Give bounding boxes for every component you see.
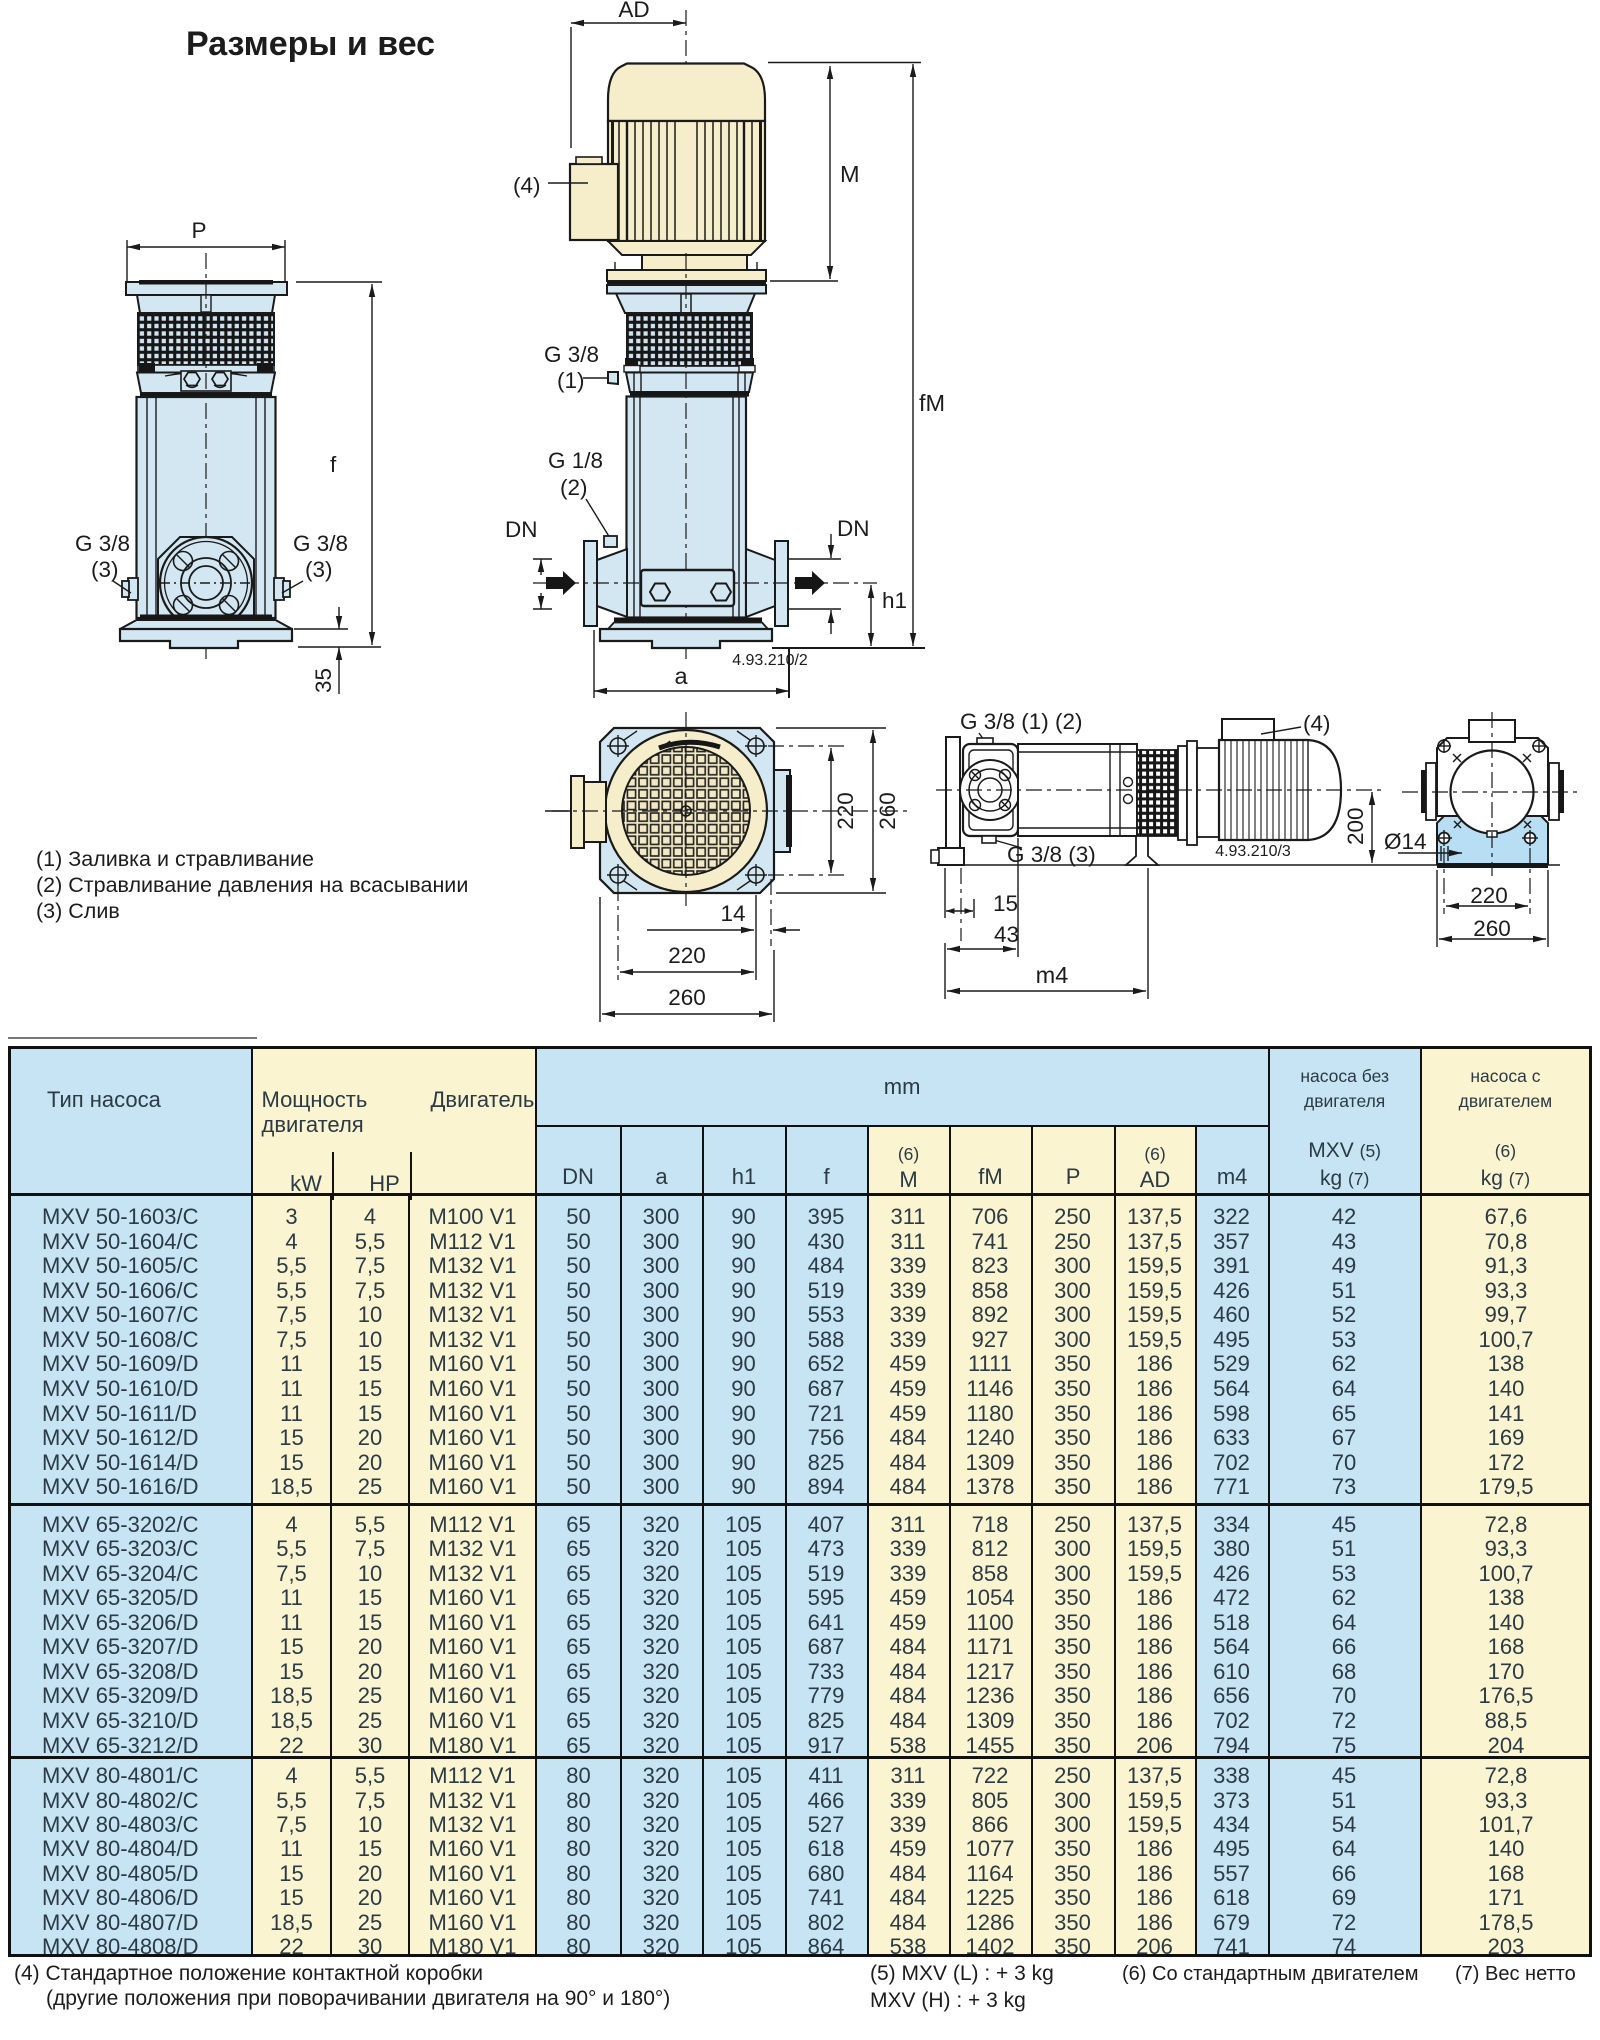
svg-text:(3): (3) bbox=[305, 557, 333, 582]
svg-text:G 3/8: G 3/8 bbox=[75, 531, 130, 556]
svg-text:220: 220 bbox=[833, 792, 858, 830]
svg-text:AD: AD bbox=[618, 0, 649, 22]
svg-text:G 3/8: G 3/8 bbox=[293, 531, 348, 556]
svg-text:15: 15 bbox=[993, 891, 1018, 916]
svg-text:Размеры и вес: Размеры и вес bbox=[186, 25, 435, 63]
svg-text:14: 14 bbox=[720, 901, 745, 926]
svg-text:220: 220 bbox=[1470, 883, 1508, 908]
svg-text:43: 43 bbox=[994, 922, 1019, 947]
svg-text:(3): (3) bbox=[91, 557, 119, 582]
svg-text:260: 260 bbox=[875, 792, 900, 830]
svg-text:260: 260 bbox=[1473, 916, 1511, 941]
svg-text:G 3/8 (3): G 3/8 (3) bbox=[1007, 842, 1096, 867]
svg-text:G 3/8 (1) (2): G 3/8 (1) (2) bbox=[960, 709, 1083, 734]
svg-text:35: 35 bbox=[311, 668, 336, 693]
svg-text:220: 220 bbox=[668, 943, 706, 968]
svg-text:(3) Слив: (3) Слив bbox=[36, 899, 120, 923]
svg-text:f: f bbox=[330, 452, 337, 477]
svg-text:4.93.210/3: 4.93.210/3 bbox=[1215, 843, 1291, 860]
svg-text:a: a bbox=[674, 663, 688, 689]
svg-text:200: 200 bbox=[1343, 807, 1368, 845]
svg-text:(2) Стравливание давления на в: (2) Стравливание давления на всасывании bbox=[36, 873, 468, 897]
svg-text:DN: DN bbox=[505, 517, 538, 542]
svg-text:DN: DN bbox=[837, 516, 870, 541]
svg-text:(4): (4) bbox=[513, 173, 541, 198]
svg-text:4.93.210/2: 4.93.210/2 bbox=[732, 652, 808, 669]
svg-text:(4): (4) bbox=[1303, 711, 1331, 736]
svg-text:m4: m4 bbox=[1036, 962, 1069, 988]
svg-text:P: P bbox=[191, 218, 206, 243]
svg-text:G 1/8: G 1/8 bbox=[548, 448, 603, 473]
svg-text:(1) Заливка и стравливание: (1) Заливка и стравливание bbox=[36, 847, 314, 871]
svg-text:260: 260 bbox=[668, 985, 706, 1010]
svg-text:M: M bbox=[840, 161, 860, 187]
svg-text:(1): (1) bbox=[557, 368, 585, 393]
svg-text:fM: fM bbox=[919, 390, 945, 416]
svg-text:h1: h1 bbox=[882, 588, 907, 613]
svg-text:Ø14: Ø14 bbox=[1384, 829, 1427, 854]
svg-text:G 3/8: G 3/8 bbox=[544, 342, 599, 367]
svg-text:(2): (2) bbox=[560, 475, 588, 500]
